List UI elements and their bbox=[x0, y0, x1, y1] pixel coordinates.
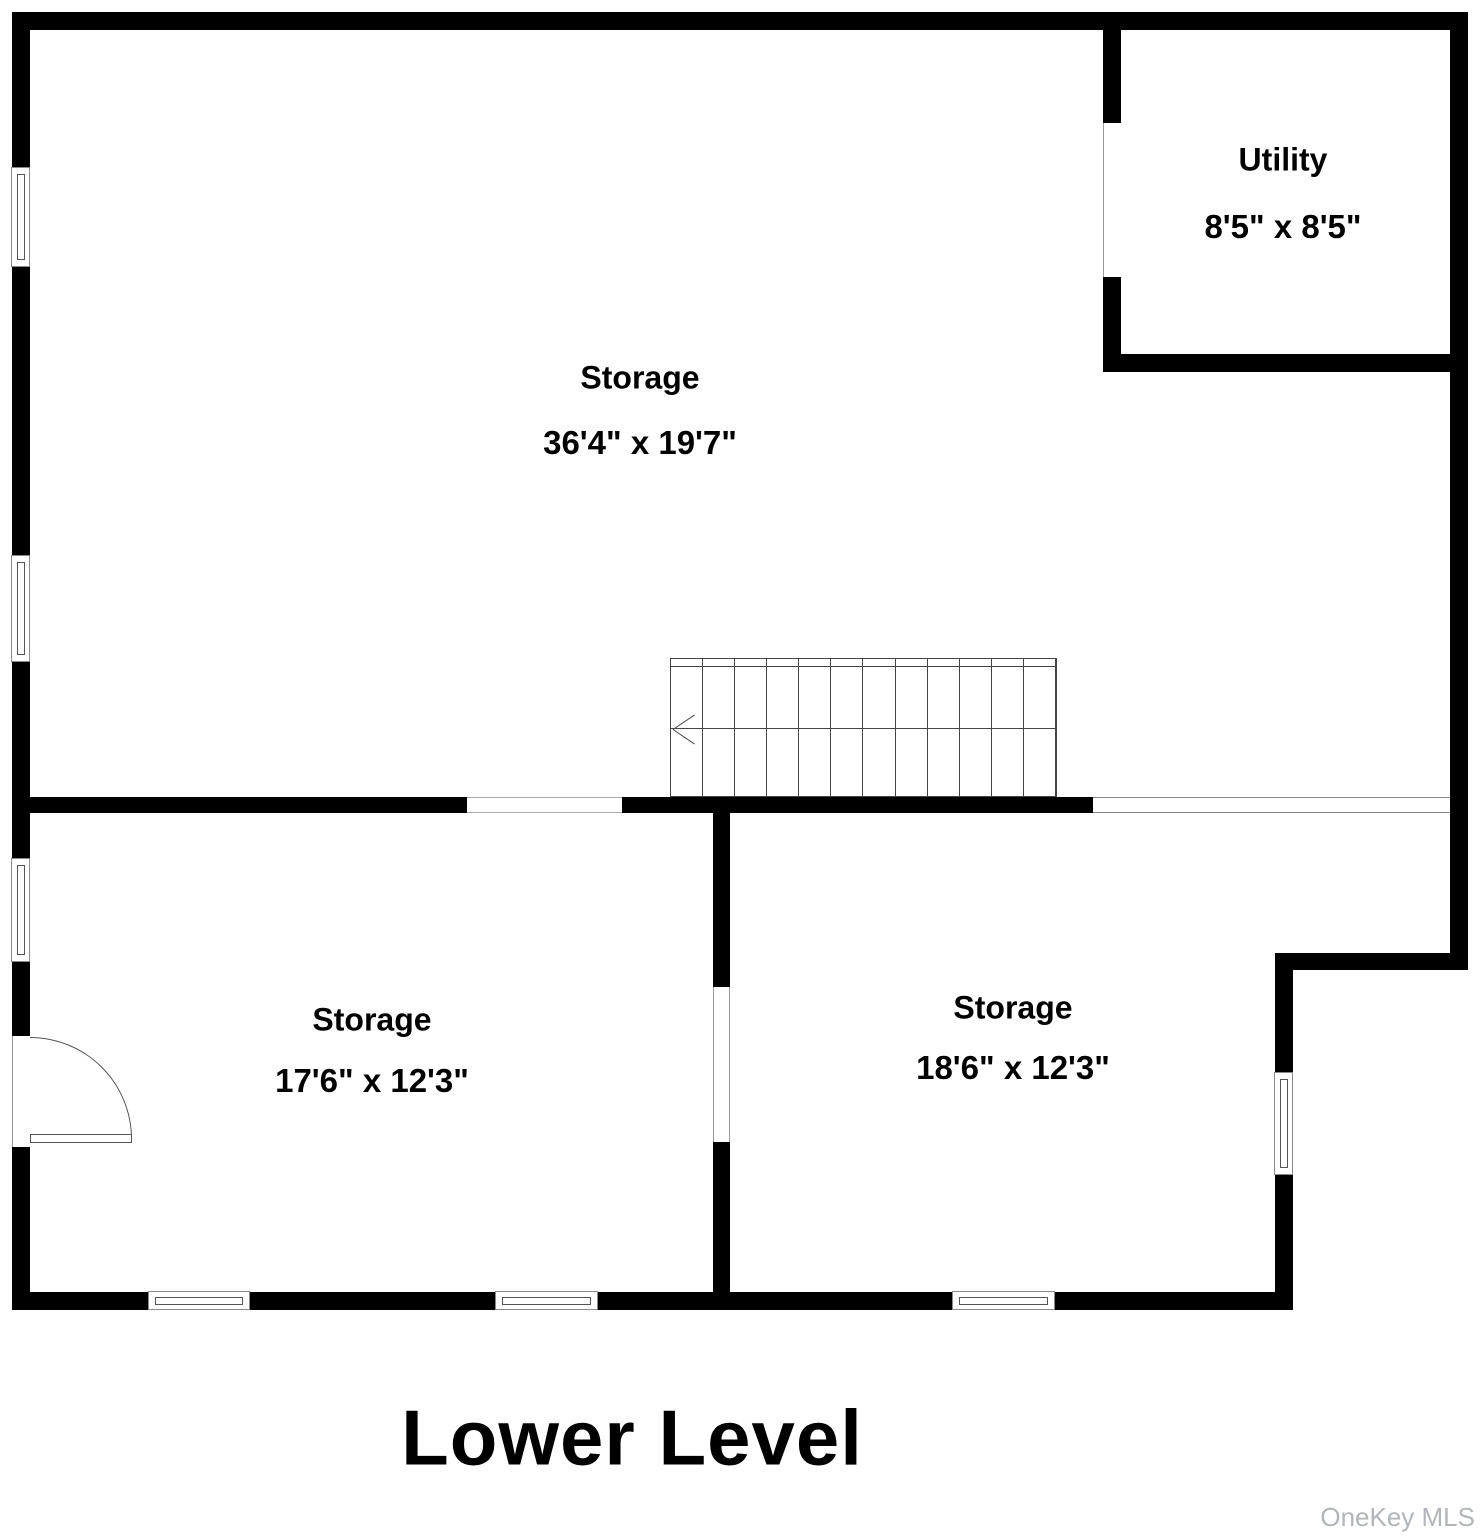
window-bottom-2 bbox=[495, 1291, 598, 1310]
room-name-storage-left: Storage bbox=[312, 1002, 431, 1039]
utility-door-opening bbox=[1103, 123, 1122, 277]
window-bottom-3 bbox=[952, 1291, 1055, 1310]
window-bottom-1 bbox=[148, 1291, 250, 1310]
wall-outer-top bbox=[12, 12, 1468, 30]
wall-outer-right-upper bbox=[1450, 12, 1468, 970]
window-pane bbox=[959, 1297, 1048, 1305]
open-passage-lines bbox=[1093, 797, 1450, 813]
wall-jog bbox=[1275, 953, 1468, 970]
room-name-storage-right: Storage bbox=[953, 990, 1072, 1027]
watermark: OneKey MLS bbox=[1320, 1502, 1475, 1533]
room-name-storage-main: Storage bbox=[580, 360, 699, 397]
window-pane bbox=[17, 865, 25, 955]
divider-opening bbox=[467, 797, 622, 813]
door-swing-arc bbox=[30, 1037, 132, 1139]
window-right-1 bbox=[1274, 1072, 1293, 1175]
stair-top-line bbox=[671, 666, 1056, 667]
page-title: Lower Level bbox=[401, 1393, 863, 1484]
door-leaf bbox=[30, 1134, 132, 1143]
floor-plan: Storage 36'4" x 19'7" Utility 8'5" x 8'5… bbox=[0, 0, 1481, 1536]
room-dims-storage-main: 36'4" x 19'7" bbox=[543, 424, 737, 462]
window-left-3 bbox=[11, 858, 30, 962]
room-dims-storage-left: 17'6" x 12'3" bbox=[275, 1062, 469, 1100]
window-left-1 bbox=[11, 167, 30, 267]
room-dims-utility: 8'5" x 8'5" bbox=[1204, 208, 1361, 246]
room-name-utility: Utility bbox=[1239, 142, 1328, 179]
window-pane bbox=[155, 1297, 243, 1305]
room-dims-storage-right: 18'6" x 12'3" bbox=[916, 1049, 1110, 1087]
window-pane bbox=[17, 174, 25, 260]
wall-utility-bottom bbox=[1103, 354, 1450, 372]
staircase bbox=[670, 658, 1057, 797]
stair-direction-line bbox=[671, 728, 1056, 729]
window-pane bbox=[1280, 1079, 1288, 1168]
window-pane bbox=[502, 1297, 591, 1305]
storage-door-opening bbox=[713, 987, 730, 1142]
exterior-door-opening bbox=[12, 1036, 30, 1147]
window-pane bbox=[17, 562, 25, 655]
window-left-2 bbox=[11, 555, 30, 662]
